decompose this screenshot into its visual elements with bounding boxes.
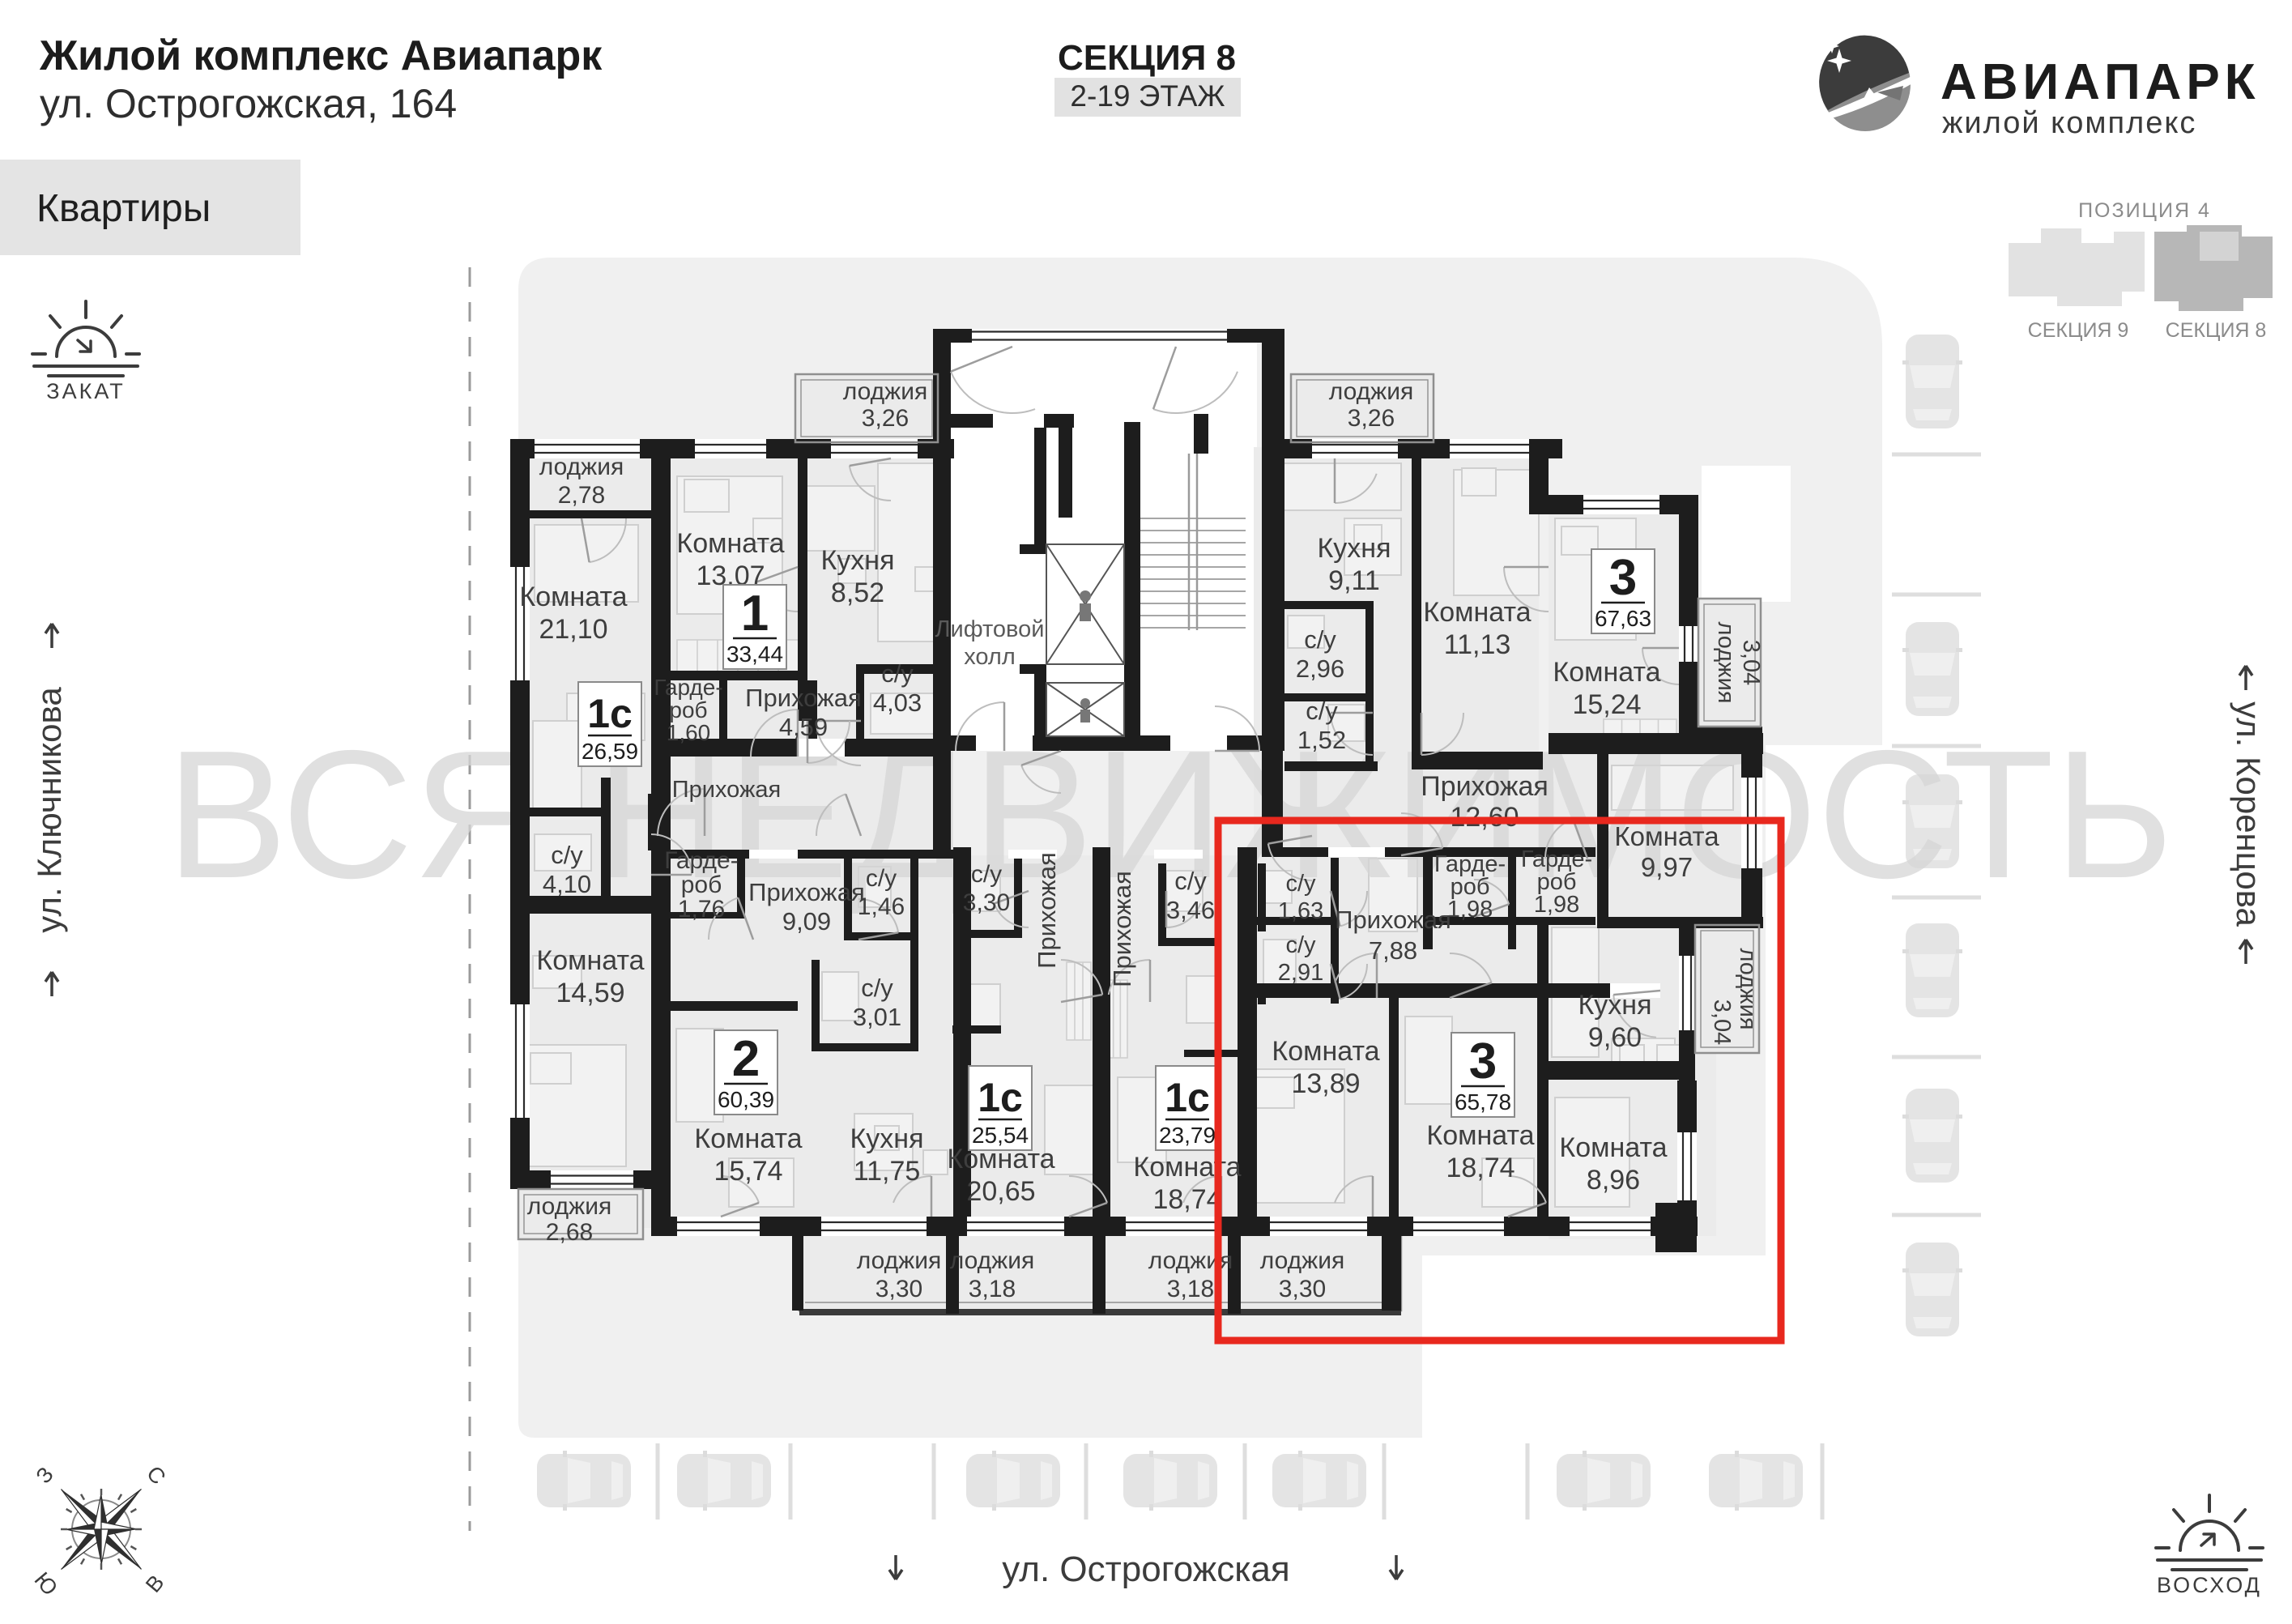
svg-text:Жилой комплекс Авиапарк: Жилой комплекс Авиапарк <box>39 32 603 79</box>
svg-text:жилой комплекс: жилой комплекс <box>1942 106 2196 140</box>
svg-text:26,59: 26,59 <box>582 739 638 764</box>
svg-text:1: 1 <box>741 586 769 642</box>
svg-text:ул. Острогожская: ул. Острогожская <box>1002 1549 1289 1589</box>
svg-text:1с: 1с <box>1165 1075 1210 1120</box>
svg-text:ЗАКАТ: ЗАКАТ <box>46 379 125 403</box>
svg-text:23,79: 23,79 <box>1159 1123 1216 1148</box>
svg-text:65,78: 65,78 <box>1455 1089 1511 1115</box>
svg-text:ул. Ключникова: ул. Ключникова <box>30 687 68 933</box>
svg-text:СЕКЦИЯ 8: СЕКЦИЯ 8 <box>1058 38 1236 78</box>
svg-text:ул. Острогожская, 164: ул. Острогожская, 164 <box>40 81 457 126</box>
svg-text:3: 3 <box>1609 550 1637 606</box>
svg-text:33,44: 33,44 <box>726 642 783 667</box>
svg-text:АВИАПАРК: АВИАПАРК <box>1941 54 2260 110</box>
svg-text:СЕКЦИЯ 8: СЕКЦИЯ 8 <box>2166 319 2267 342</box>
svg-text:2: 2 <box>732 1031 760 1087</box>
svg-text:Прихожая: Прихожая <box>672 777 781 803</box>
svg-text:ПОЗИЦИЯ 4: ПОЗИЦИЯ 4 <box>2078 199 2211 222</box>
svg-text:Прихожая: Прихожая <box>1108 871 1136 987</box>
svg-text:Квартиры: Квартиры <box>36 187 211 230</box>
svg-text:3,04: 3,04 <box>1709 1000 1735 1045</box>
svg-text:1с: 1с <box>978 1075 1023 1120</box>
svg-text:Прихожая: Прихожая <box>1033 852 1061 969</box>
svg-text:3,04: 3,04 <box>1738 640 1764 685</box>
svg-text:60,39: 60,39 <box>718 1087 774 1112</box>
svg-text:СЕКЦИЯ 9: СЕКЦИЯ 9 <box>2028 319 2129 342</box>
svg-text:лоджия: лоджия <box>1735 948 1761 1030</box>
svg-text:67,63: 67,63 <box>1595 606 1651 631</box>
svg-text:2-19 ЭТАЖ: 2-19 ЭТАЖ <box>1070 79 1225 113</box>
svg-text:лоджия: лоджия <box>1713 622 1739 704</box>
svg-text:1с: 1с <box>587 691 633 736</box>
svg-text:ул. Коренцова: ул. Коренцова <box>2230 701 2268 927</box>
svg-text:3: 3 <box>1469 1034 1497 1089</box>
svg-text:25,54: 25,54 <box>972 1123 1029 1148</box>
svg-text:ВОСХОД: ВОСХОД <box>2157 1573 2262 1597</box>
